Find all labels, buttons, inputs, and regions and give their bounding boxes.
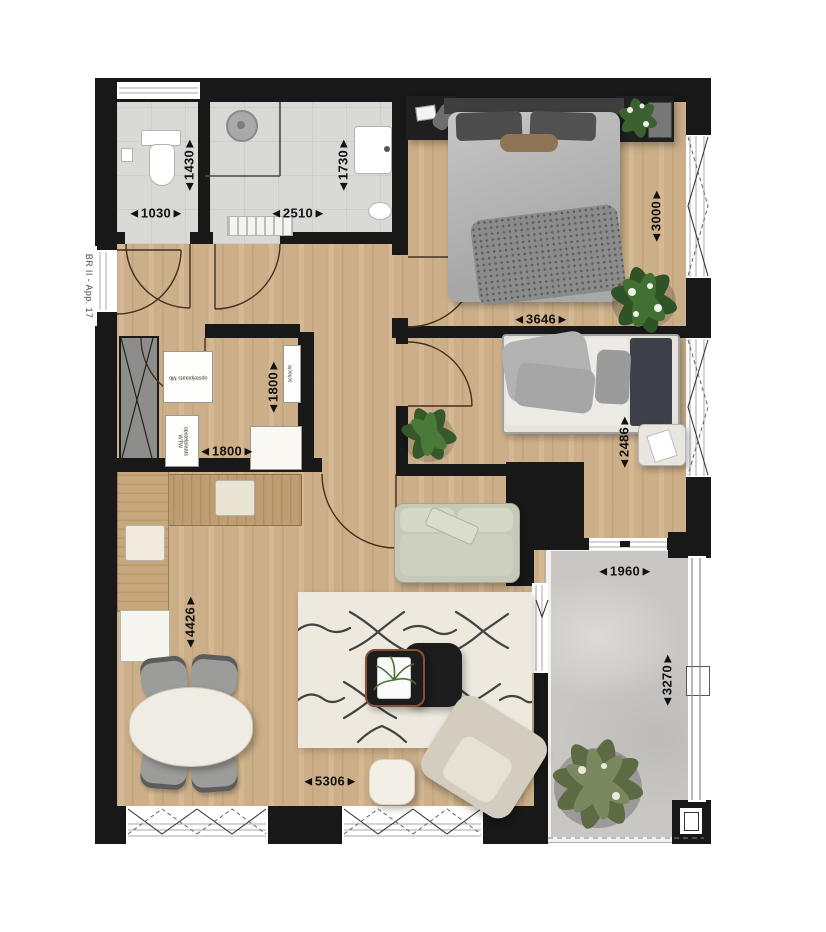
kitchen-sink [215,480,255,516]
wall-right-3 [686,477,711,536]
dim-balcony-depth: ◄3270► [660,652,675,708]
pouf [369,759,415,805]
wall-storage-top [205,324,300,338]
toilet-flush-panel [121,148,133,162]
dim-toilet-depth: ◄1430► [182,137,197,193]
dim-bathroom-depth: ◄1730► [336,137,351,193]
sofa-seat [400,534,513,576]
dim-storage-depth: ◄1800► [266,359,281,415]
bed1-throw [469,203,626,306]
dim-living-depth: ◄4426► [183,594,198,650]
balcony-door [532,583,548,673]
dim-toilet-width: ◄1030► [128,206,184,221]
wall-bottom-1 [95,806,126,844]
entrance-door-gap [95,250,117,312]
dining-table [129,687,253,767]
wall-left-lower [95,312,117,844]
bed2-dark-blanket [630,338,672,426]
railing-handle [686,666,710,696]
dim-storage-width: ◄1800► [199,444,255,459]
column-inset-inner [684,812,699,831]
shaft-label: schacht [289,365,295,382]
dim-living-width: ◄5306► [302,774,358,789]
wall-right-1 [686,78,711,135]
washbasin-tap [384,146,390,152]
kitchen-sideboard [120,610,170,662]
wtw-position-box: opstelplaats WTW [165,415,199,467]
wall-bed2-west-a [396,338,408,344]
wall-left-upper [95,78,117,250]
pot-plant-sprigs [372,650,418,700]
dim-bedroom2-depth: ◄2486► [617,414,632,470]
small-basin [368,202,392,220]
dim-bedroom1-depth: ◄3000► [649,188,664,244]
plant-bedroom1 [606,262,682,338]
plant-dresser [616,94,660,142]
kitchen-cooktop [125,525,165,561]
meter-cupboard [119,336,159,468]
washer-position-label: opstelplaats Mb [169,374,208,380]
wall-balcony-topright [668,532,711,558]
bed1-cushion [500,134,558,152]
window-living-left [126,806,268,842]
dim-bathroom-width: ◄2510► [270,206,326,221]
wtw-position-label: opstelplaats WTW [176,425,189,457]
window-bedroom2 [686,338,711,477]
wall-right-2 [686,278,711,338]
wall-hall-b [190,232,213,244]
window-bedroom1 [686,135,711,278]
storage-cabinet [250,426,302,470]
plant-hallway [398,400,460,470]
shower-head-dot [237,121,245,129]
bedroom2-balcony-glazing [584,538,672,550]
unit-label: BR II - App. 17 [84,254,94,319]
wall-hall-a [117,232,125,244]
window-toilet-top [117,82,200,99]
bed2-blanket-fold2 [514,361,597,414]
window-living-right [342,806,483,842]
floor-plan: opstelplaats Mb opstelplaats WTW schacht [0,0,826,932]
wall-toilet-east [198,102,210,244]
wall-hall-c [280,232,392,244]
dim-bedroom1-width: ◄3646► [513,312,569,327]
dim-balcony-width: ◄1960► [597,564,653,579]
wall-bottom-2 [268,806,342,844]
plant-balcony [546,726,650,844]
shaft-strip: schacht [283,345,301,403]
bed2-pillow [595,349,632,405]
washer-position-box: opstelplaats Mb [163,351,213,403]
toilet-bowl [149,144,175,186]
